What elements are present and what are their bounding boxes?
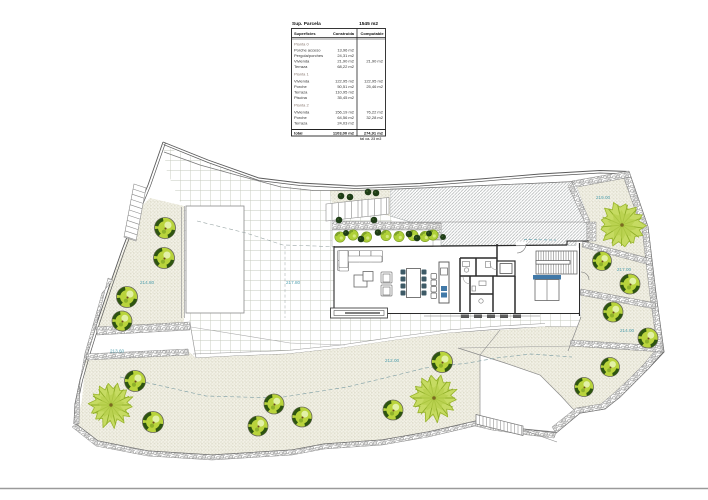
svg-text:214.00: 214.00 [620, 328, 634, 333]
svg-text:Planta 2: Planta 2 [294, 103, 309, 108]
svg-text:Terraza: Terraza [294, 64, 308, 69]
svg-text:Porche: Porche [294, 84, 307, 89]
svg-text:68,22 m2: 68,22 m2 [337, 64, 354, 69]
svg-text:24,03 m2: 24,03 m2 [337, 121, 354, 126]
svg-text:Computable: Computable [361, 31, 385, 36]
svg-text:219.00: 219.00 [596, 195, 610, 200]
svg-text:110,95 m2: 110,95 m2 [335, 90, 354, 95]
svg-text:156,19 m2: 156,19 m2 [335, 110, 355, 115]
svg-text:21,90 m2: 21,90 m2 [366, 59, 383, 64]
svg-text:21,90 m2: 21,90 m2 [337, 59, 354, 64]
svg-text:Vivienda: Vivienda [294, 79, 310, 84]
svg-text:35,45 m2: 35,45 m2 [337, 95, 354, 100]
svg-text:213.60: 213.60 [110, 349, 124, 354]
svg-text:Vivienda: Vivienda [294, 110, 310, 115]
svg-text:Superficies: Superficies [294, 31, 316, 36]
svg-text:217.00: 217.00 [617, 267, 631, 272]
svg-text:Sup. Parcela: Sup. Parcela [292, 21, 321, 27]
svg-text:13,96 m2: 13,96 m2 [337, 48, 354, 53]
svg-text:Pergola/porches: Pergola/porches [294, 53, 323, 58]
svg-text:122,95 m2: 122,95 m2 [364, 79, 384, 84]
svg-text:122,95 m2: 122,95 m2 [335, 79, 355, 84]
svg-text:total: total [294, 131, 302, 136]
svg-text:217.80: 217.80 [286, 280, 300, 285]
svg-text:50,51 m2: 50,51 m2 [337, 84, 354, 89]
svg-text:Terraza: Terraza [294, 90, 308, 95]
svg-text:64,56 m2: 64,56 m2 [337, 115, 354, 120]
svg-text:274,91 m2: 274,91 m2 [364, 131, 384, 136]
svg-text:25,46 m2: 25,46 m2 [366, 84, 383, 89]
svg-text:24,31 m2: 24,31 m2 [337, 53, 354, 58]
svg-text:Porche acceso: Porche acceso [294, 48, 321, 53]
svg-text:Planta 0: Planta 0 [294, 42, 309, 47]
svg-text:Planta 1: Planta 1 [294, 72, 309, 77]
svg-text:Vivienda: Vivienda [294, 59, 310, 64]
svg-text:Terraza: Terraza [294, 121, 308, 126]
svg-text:1103,00 m2: 1103,00 m2 [333, 131, 355, 136]
svg-text:Construida: Construida [333, 31, 355, 36]
svg-text:Piscina: Piscina [294, 95, 308, 100]
svg-text:212.00: 212.00 [385, 358, 399, 363]
svg-text:Porche: Porche [294, 115, 307, 120]
svg-text:32,28 m2: 32,28 m2 [366, 115, 383, 120]
svg-text:1545 m2: 1545 m2 [359, 21, 378, 27]
svg-text:tal ca. 23 m2: tal ca. 23 m2 [360, 137, 381, 141]
svg-text:214.80: 214.80 [140, 280, 154, 285]
svg-text:76,22 m2: 76,22 m2 [366, 110, 383, 115]
